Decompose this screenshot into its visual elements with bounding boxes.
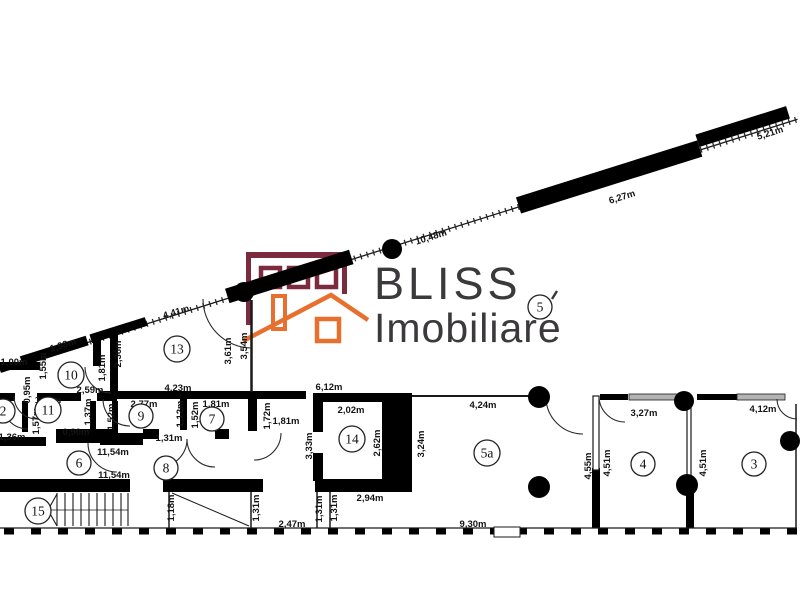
dimension-label: 1,31m: [156, 433, 183, 444]
dimension-label: 1,31m: [329, 495, 340, 522]
room-number: 8: [154, 456, 178, 480]
dimension-label: 2,59m: [77, 385, 104, 396]
dimension-label: 2,94m: [357, 493, 384, 504]
dimension-label: 1,00m: [1, 357, 28, 368]
dimension-label: 3,61m: [223, 338, 234, 365]
staircase: [48, 493, 128, 526]
room-number-text: 5a: [481, 446, 494, 461]
dimension-label: 1,31m: [314, 496, 325, 523]
dimension-label: 6,12m: [316, 382, 343, 393]
dimension-label: 3,27m: [631, 408, 658, 419]
dimension-label: 1,72m: [262, 403, 273, 430]
dimension-label: 4,12m: [750, 404, 777, 415]
room-number: 9: [129, 404, 153, 428]
dimension-label: 0,90m: [63, 427, 90, 438]
room-number-text: 9: [138, 409, 145, 424]
room-number-text: 8: [163, 461, 170, 476]
dimension-label: 9,30m: [460, 519, 487, 530]
dimension-label: 1,55m: [38, 353, 49, 380]
room-number: 6: [67, 451, 91, 475]
dimension-label: 1,31m: [251, 495, 262, 522]
room-number: 2: [0, 399, 15, 423]
dimension-label: 1,36m: [0, 432, 25, 443]
room-number: 4: [631, 452, 655, 476]
room-number-text: 10: [64, 368, 78, 383]
dimension-label: 4,55m: [583, 453, 594, 480]
room-number: 5: [528, 295, 552, 319]
dimension-label: 2,36m: [113, 341, 124, 368]
dimension-label: 0,95m: [22, 377, 33, 404]
dimension-label: 1,37m: [83, 399, 94, 426]
dimension-label: 1,12m: [175, 401, 186, 428]
room-number: 10: [58, 362, 84, 388]
dimension-label: 1,81m: [97, 355, 108, 382]
room-number-text: 3: [751, 457, 758, 472]
room-number-text: 2: [0, 404, 6, 419]
room-number: 15: [25, 498, 51, 524]
accent-mark: [552, 291, 557, 299]
room-number-text: 6: [76, 456, 83, 471]
dimension-label: 3,54m: [239, 333, 250, 360]
dimension-label: 4,51m: [698, 450, 709, 477]
dimension-label: 4,51m: [602, 450, 613, 477]
band-door-notch: [494, 527, 520, 537]
floor-plan: BLISS Imobiliare 5,21m6,27m10,48m4,41m1,…: [0, 0, 800, 600]
room-number-text: 5: [537, 300, 544, 315]
logo-house-icon: [243, 295, 368, 341]
room-number-text: 15: [31, 504, 45, 519]
room-number-text: 4: [640, 457, 647, 472]
dimension-label: 3,33m: [304, 433, 315, 460]
room-number-text: 14: [345, 432, 359, 447]
dimension-label: 10,48m: [414, 227, 448, 247]
room-number-text: 13: [170, 342, 184, 357]
room-number: 13: [164, 336, 190, 362]
logo-wordmark-line1: BLISS: [374, 258, 522, 309]
dimension-label: 6,27m: [608, 188, 637, 207]
dimension-label: 4,23m: [165, 383, 192, 394]
floor-plan-drawing: BLISS Imobiliare 5,21m6,27m10,48m4,41m1,…: [0, 0, 800, 600]
dimension-label: 4,24m: [470, 400, 497, 411]
dimension-label: 2,47m: [279, 519, 306, 530]
room-number: 11: [35, 397, 61, 423]
room-number: 14: [339, 426, 365, 452]
dimension-label: 1,18m: [166, 495, 177, 522]
dimension-label: 2,62m: [372, 430, 383, 457]
room-number: 5a: [474, 440, 500, 466]
dimension-label: 11,54m: [97, 447, 129, 458]
room-number-text: 7: [209, 412, 216, 427]
dimension-label: 1,52m: [106, 404, 117, 431]
dimension-label: 2,02m: [338, 405, 365, 416]
dimension-label: 4,41m: [162, 303, 191, 322]
dimension-label: 1,81m: [273, 416, 300, 427]
dimension-label: 3,24m: [416, 431, 427, 458]
room-number: 7: [200, 407, 224, 431]
dimension-label: 1,52m: [190, 402, 201, 429]
room-number: 3: [742, 452, 766, 476]
room-number-text: 11: [42, 403, 55, 418]
bottom-window-band: [0, 527, 797, 537]
dimension-label: 11,54m: [98, 470, 130, 481]
